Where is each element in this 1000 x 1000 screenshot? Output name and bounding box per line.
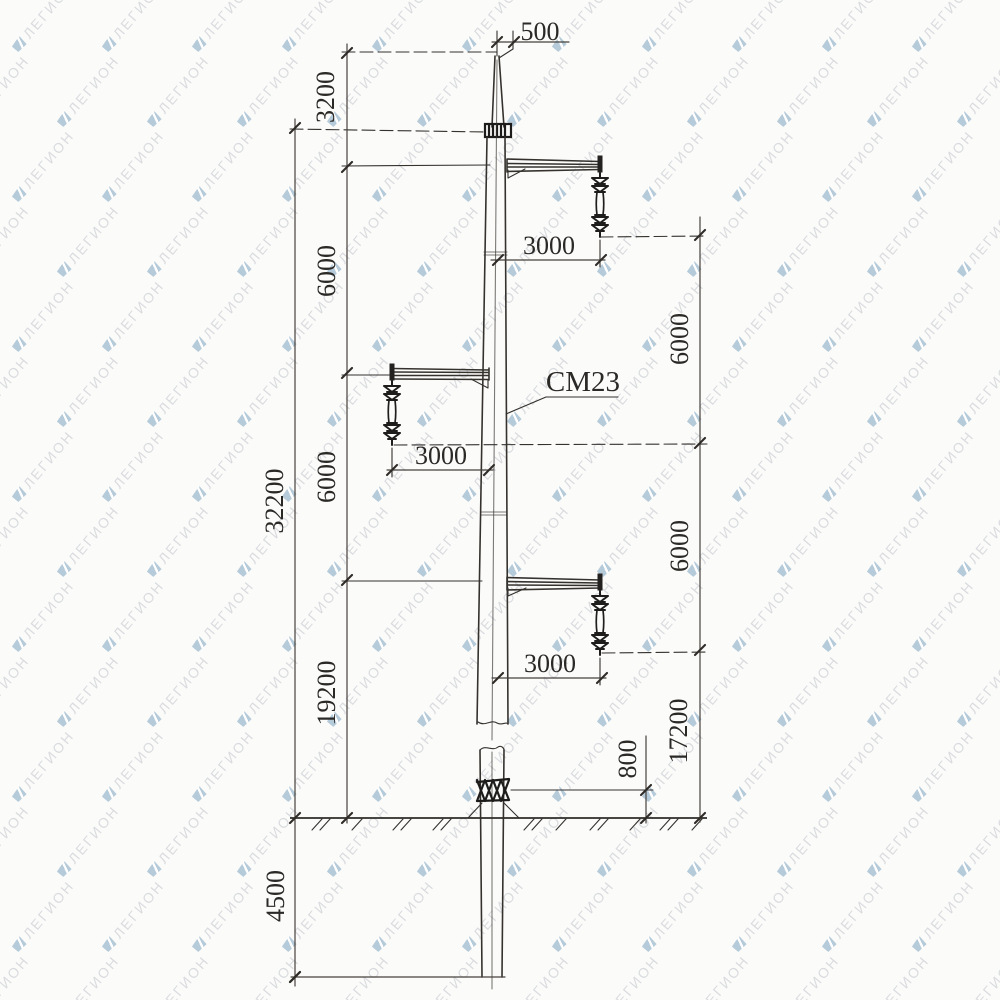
dim-text-3000-bottom: 3000 (524, 649, 576, 678)
pole-technical-drawing: 500 3200 6000 6000 19200 32200 4500 6000… (0, 0, 1000, 1000)
crossarm-end-plate (390, 364, 395, 381)
dim-text-3000-middle: 3000 (415, 441, 467, 470)
dim-text-17200: 17200 (664, 699, 693, 764)
crossarm-middle-left (390, 364, 490, 389)
insulator-string-middle (384, 381, 400, 445)
pole-type-callout: СМ23 (506, 366, 620, 414)
dim-text-800: 800 (613, 740, 642, 779)
dim-text-3200: 3200 (311, 71, 340, 123)
dimension-lines (291, 42, 700, 986)
dimension-ticks (290, 37, 705, 982)
crossarm-end-plate (598, 156, 603, 173)
pole-flange-joint (485, 124, 511, 137)
pole-shaft (477, 60, 508, 740)
dim-text-left-6000-2: 6000 (312, 451, 341, 503)
dim-text-top-offset: 500 (521, 17, 560, 46)
dim-text-19200: 19200 (312, 661, 341, 726)
insulator-string-top (592, 173, 608, 237)
crossarm-bottom-right (507, 574, 603, 597)
pole-type-label: СМ23 (546, 366, 620, 398)
crossarm-end-plate (598, 574, 603, 591)
dim-text-4500: 4500 (261, 870, 290, 922)
drawing-page: ЛЕГИОНЛЕГИОНЛЕГИОНЛЕГИОНЛЕГИОНЛЕГИОНЛЕГИ… (0, 0, 1000, 1000)
dim-text-3000-top: 3000 (523, 231, 575, 260)
ground-entry-flares (468, 803, 519, 818)
dim-text-right-6000-1: 6000 (665, 313, 694, 365)
dim-text-right-6000-2: 6000 (665, 520, 694, 572)
insulator-string-bottom (592, 591, 608, 655)
dim-text-left-6000-1: 6000 (312, 245, 341, 297)
crossarm-top-right (507, 156, 603, 179)
dim-text-32200: 32200 (260, 469, 289, 534)
pole-body (468, 31, 519, 989)
